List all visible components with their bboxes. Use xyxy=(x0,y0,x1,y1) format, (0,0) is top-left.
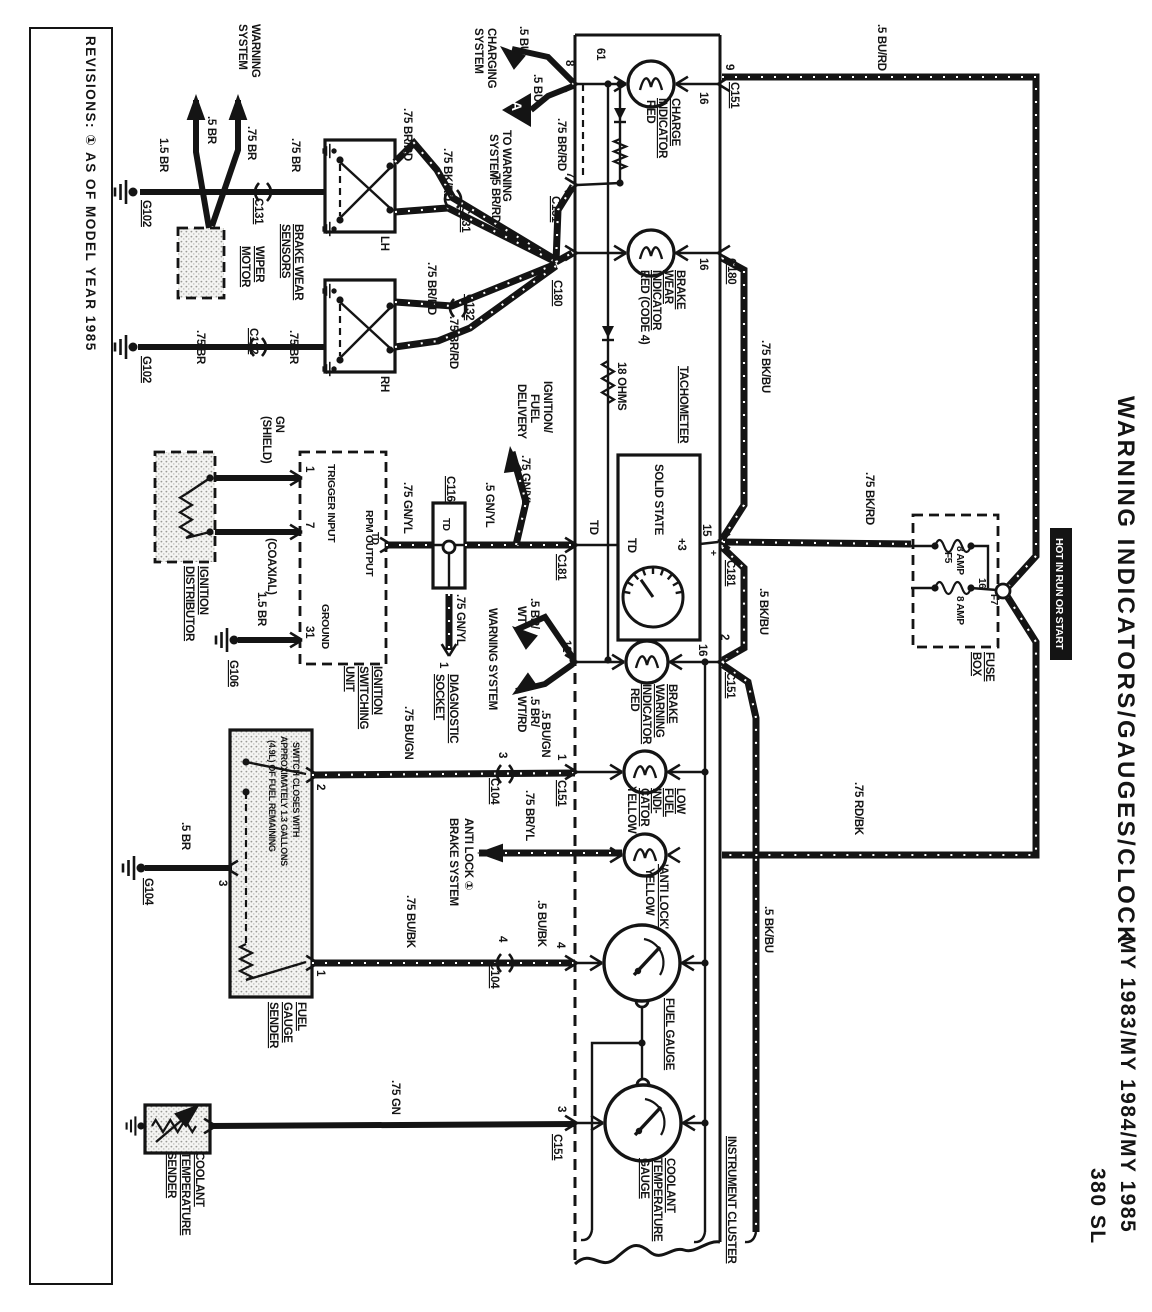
diagram-label: .5 BU/RD xyxy=(875,24,887,71)
diagram-label: 8 AMP xyxy=(954,546,965,575)
diagram-label: 1 xyxy=(303,466,315,473)
wire xyxy=(340,168,390,218)
junction-dot xyxy=(386,206,393,213)
diagram-label: FUSE xyxy=(983,652,995,682)
junction-dot xyxy=(206,474,213,481)
gauge-pivot xyxy=(635,968,641,974)
diagram-label: SWITCH CLOSES WITH xyxy=(291,742,301,837)
diagram-label: 1.5 BR xyxy=(157,138,169,173)
diagram-label: TRIGGER INPUT xyxy=(325,464,337,543)
junction-dot xyxy=(336,296,343,303)
diagram-label: 16 xyxy=(697,258,709,270)
diagram-label: C151 xyxy=(728,82,740,109)
diagram-label: 61 xyxy=(594,48,606,61)
junction-dot xyxy=(206,528,213,535)
diagram-label: RH xyxy=(378,376,390,392)
coolant-temperature-gauge-dial xyxy=(605,1085,681,1161)
diagram-label: 12 xyxy=(560,640,572,652)
diagram-label: C132 xyxy=(463,294,475,320)
junction-dot xyxy=(242,788,249,795)
diagram-label: COOLANT xyxy=(193,1152,205,1207)
fuel-gauge-dial xyxy=(604,925,680,1001)
diagram-label: + xyxy=(707,550,718,556)
diagram-label: .75 BR/RD xyxy=(425,262,437,315)
diagram-label: .75 BR/YL xyxy=(523,790,535,841)
diagram-label: F5 xyxy=(942,552,953,564)
diagram-label: .5 BU/GN xyxy=(539,710,551,757)
flow-arrow xyxy=(512,626,538,650)
diagram-label: TD xyxy=(369,532,380,545)
coolant-temperature-sender-box xyxy=(145,1105,210,1153)
diagram-label: C132 xyxy=(247,328,259,354)
diagram-label: .75 BR xyxy=(287,330,299,365)
diagram-label: 1 xyxy=(555,754,567,761)
diagram-label: .75 GN/YL xyxy=(401,482,413,534)
wire xyxy=(340,162,390,208)
diagram-label: GN xyxy=(273,416,285,433)
torn-wire-hook xyxy=(694,1232,705,1242)
diagram-label: LH xyxy=(378,236,390,251)
diagram-label: G102 xyxy=(140,356,152,383)
diagram-label: 31 xyxy=(303,626,315,639)
diagram-label: C151 xyxy=(551,1134,563,1161)
diagram-label: G104 xyxy=(142,878,154,906)
junction-dot xyxy=(701,959,708,966)
diagram-label: 1 xyxy=(314,970,326,977)
diagram-label: UNIT xyxy=(343,666,355,692)
fuel-gauge-dial xyxy=(604,925,680,1001)
diagram-label: YELLOW xyxy=(643,868,655,916)
diagram-label: G106 xyxy=(227,660,239,687)
labels-layer: REVISIONS: ① AS OF MODEL YEAR 1985WARNIN… xyxy=(83,24,1139,1264)
diagram-label: GROUND xyxy=(319,604,331,650)
diagram-label: C151 xyxy=(555,780,567,807)
diagram-label: ANTI LOCK ① xyxy=(462,818,474,890)
diagram-label: WARNING SYSTEM xyxy=(486,608,498,710)
fuse-icon xyxy=(935,582,971,594)
diagram-label: TD xyxy=(587,520,599,535)
revisions-panel xyxy=(30,28,112,1284)
diagram-label: (COAXIAL) xyxy=(265,538,277,595)
diagram-label: MOTOR xyxy=(239,246,251,288)
diagram-label: RED xyxy=(644,100,656,123)
ground-icon xyxy=(331,148,336,153)
diagram-label: WARNING xyxy=(653,684,665,738)
diagram-label: .75 GN xyxy=(389,1080,401,1115)
tach-tick xyxy=(624,592,630,593)
diagram-label: IGNITION xyxy=(371,666,383,715)
diagram-label: 1 xyxy=(437,662,449,669)
terminal-circle xyxy=(443,541,455,553)
diagram-label: YELLOW xyxy=(625,786,637,834)
diagram-label: .75 BR/RD xyxy=(555,118,567,171)
diagram-label: .5 GN/YL xyxy=(483,482,495,528)
wire xyxy=(722,596,1036,855)
junction-dot xyxy=(701,1119,708,1126)
diagram-label: .5 BR xyxy=(179,822,191,851)
wire xyxy=(722,258,744,538)
diagram-label: FUEL GAUGE xyxy=(663,998,675,1071)
wires-layer xyxy=(138,35,1036,1264)
diagram-label: A xyxy=(509,101,525,111)
ground-icon xyxy=(331,366,336,371)
diagram-label: C180 xyxy=(725,258,737,284)
diagram-label: SYSTEM xyxy=(487,134,499,180)
diagram-label: INSTRUMENT CLUSTER xyxy=(725,1136,737,1264)
diagram-label: SENDER xyxy=(267,1002,279,1049)
diagram-label: .5 BU xyxy=(531,74,543,102)
diagram-label: COOLANT xyxy=(664,1158,676,1213)
diagram-label: SOCKET xyxy=(433,674,445,720)
diagram-label: 3 xyxy=(216,880,228,886)
diagram-label: RED xyxy=(628,688,640,711)
diagram-label: 16 xyxy=(976,578,987,589)
diagram-label: .5 BR/ xyxy=(528,696,540,728)
diagram-label: 2 xyxy=(314,784,326,790)
diagram-label: SYSTEM xyxy=(472,28,484,74)
diagram-label: IGNITION xyxy=(197,566,209,615)
wire-hatch xyxy=(395,208,556,262)
diagram-label: WIPER xyxy=(253,246,265,283)
wiper-motor-box xyxy=(178,228,224,298)
diagram-label: WARNING INDICATORS/GAUGES/CLOCK xyxy=(1112,396,1139,946)
torn-wire-hook xyxy=(581,1230,592,1240)
diagram-label: INDICATOR xyxy=(650,270,662,331)
pin-arrow xyxy=(668,848,680,855)
diagram-label: 7 xyxy=(564,172,576,178)
wire xyxy=(340,302,390,348)
diagram-label: 'ANTI LOCK' xyxy=(657,864,669,929)
wire xyxy=(395,143,556,260)
diagram-label: .75 RD/BK xyxy=(852,782,864,836)
diagram-label: WEAR xyxy=(662,270,674,305)
diagram-label: .75 GN/YL xyxy=(519,455,531,507)
diagram-label: REVISIONS: ① AS OF MODEL YEAR 1985 xyxy=(83,36,98,352)
diagram-label: IGNITION/ xyxy=(541,381,553,434)
flow-arrow xyxy=(477,844,503,863)
diagram-label: .5 BU/BK xyxy=(535,900,547,948)
junction-dot xyxy=(336,216,343,223)
diagram-label: (SHIELD) xyxy=(260,416,272,464)
diagram-label: TEMPERATURE xyxy=(179,1152,191,1236)
flow-arrow xyxy=(187,94,206,120)
diagram-label: .5 BR/ xyxy=(528,598,540,630)
diagram-label: C151 xyxy=(549,196,561,223)
tachometer-dial xyxy=(623,567,683,627)
diagram-label: BOX xyxy=(970,652,982,677)
diagram-label: 9 xyxy=(723,64,735,70)
junction-dot xyxy=(701,658,708,665)
flow-arrow xyxy=(229,94,248,120)
ignition-distributor-box xyxy=(155,452,215,562)
diagram-label: .5 BK/BU xyxy=(757,588,769,635)
pin-arrow xyxy=(668,855,680,862)
diagram-label: 8 xyxy=(563,60,575,67)
diagram-label: CHARGE xyxy=(669,98,681,147)
junction-dot xyxy=(386,162,393,169)
diagram-label: 4 xyxy=(496,936,508,943)
diagram-label: C181 xyxy=(555,554,567,581)
wire xyxy=(395,208,556,262)
resistor-icon xyxy=(614,139,626,169)
diagram-label: BRAKE xyxy=(666,684,678,724)
diagram-label: .75 BK/RD xyxy=(863,472,875,525)
diagram-label: SENSORS xyxy=(279,224,291,279)
diagram-label: GAUGE xyxy=(638,1158,650,1199)
diagram-label: 3 xyxy=(496,752,508,758)
diagram-label: .5 BR xyxy=(205,116,217,145)
diagram-label: .75 BR xyxy=(194,330,206,365)
ground-icon xyxy=(137,864,146,873)
torn-wire-hook xyxy=(745,1232,756,1242)
wire xyxy=(577,183,620,185)
diagram-label: DIAGNOSTIC xyxy=(447,674,459,743)
diagram-label: RED (CODE 4) xyxy=(638,270,650,345)
diagram-label: 4 xyxy=(554,942,566,949)
junction-dot xyxy=(604,80,611,87)
diagram-label: 3 xyxy=(555,1106,567,1112)
diagram-label: WT xyxy=(515,606,527,624)
diagram-label: CATOR xyxy=(638,788,650,827)
diagram-label: G102 xyxy=(140,200,152,227)
junction-dot xyxy=(616,179,623,186)
diagram-label: SWITCHING xyxy=(357,666,369,729)
diagram-label: WT/RD xyxy=(515,696,527,732)
diagram-label: CHARGING xyxy=(485,28,497,89)
diagram-label: FUEL xyxy=(528,394,540,423)
rh-brake-wear-sensor-box xyxy=(325,280,395,372)
ground-icon xyxy=(137,1122,144,1129)
diagram-label: .75 BR xyxy=(289,138,301,173)
diagram-label: C131 xyxy=(459,206,471,233)
diagram-label: DELIVERY xyxy=(515,384,527,439)
wire xyxy=(700,542,718,544)
diagram-label: BRAKE WEAR xyxy=(292,224,304,301)
diagram-label: WARNING xyxy=(249,24,261,78)
diagram-label: BRAKE xyxy=(674,270,686,310)
diagram-label: C116 xyxy=(444,476,456,502)
diagram-label: C104 xyxy=(488,778,500,805)
diagram-label: APPROXIMATELY 1.3 GALLONS xyxy=(279,736,289,866)
wire-hatch xyxy=(722,596,1036,855)
junction-dot xyxy=(242,758,249,765)
diagram-label: GAUGE xyxy=(281,1002,293,1043)
diagram-label: .75 BR/RD xyxy=(447,316,459,369)
coolant-temperature-gauge-dial xyxy=(605,1085,681,1161)
diagram-label: +3 xyxy=(675,538,687,551)
diagram-label: BRAKE SYSTEM xyxy=(447,818,459,906)
diagram-label: 8 AMP xyxy=(954,596,965,625)
junction-dot xyxy=(336,156,343,163)
diagram-label: INDICATOR xyxy=(656,98,668,159)
ground-icon xyxy=(129,343,138,352)
cluster-torn-edge xyxy=(575,1242,720,1264)
diagram-label: .5 BK/BU xyxy=(762,906,774,953)
diagram-label: 16 xyxy=(697,92,709,104)
wire xyxy=(722,77,1036,588)
wire-hatch xyxy=(722,77,1036,588)
diode-icon xyxy=(602,326,614,338)
diagram-label: FUEL xyxy=(295,1002,307,1031)
diagram-label: C131 xyxy=(252,198,264,225)
gauge-pivot xyxy=(636,1128,642,1134)
ground-icon xyxy=(331,288,336,293)
lh-brake-wear-sensor-box xyxy=(325,140,395,232)
junction-dot xyxy=(701,768,708,775)
diagram-label: TACHOMETER xyxy=(677,366,689,444)
diagram-label: 7 xyxy=(303,522,315,528)
diagram-label: .75 BK/BU xyxy=(759,340,771,393)
wire xyxy=(210,1124,575,1126)
junction-dot xyxy=(386,346,393,353)
diode-icon xyxy=(614,108,626,120)
diagram-label: TD xyxy=(440,518,451,531)
wire xyxy=(340,308,390,358)
ground-icon xyxy=(230,636,239,645)
diagram-label: INDICATOR xyxy=(640,684,652,745)
diagram-label: MY 1983/MY 1984/MY 1985 xyxy=(1116,936,1139,1233)
diagram-label: SYSTEM xyxy=(236,24,248,70)
diagram-label: 380 SL xyxy=(1086,1168,1109,1245)
ground-icon xyxy=(129,188,138,197)
diagram-label: HOT IN RUN OR START xyxy=(1053,538,1065,650)
diagram-label: TO WARNING xyxy=(500,130,512,202)
brake-warning-indicator-bulb xyxy=(626,641,668,683)
wire xyxy=(723,542,911,544)
diagram-label: INDI- xyxy=(650,788,662,814)
wiring-diagram-svg: REVISIONS: ① AS OF MODEL YEAR 1985WARNIN… xyxy=(0,0,1152,1312)
diagram-label: 2 xyxy=(718,634,730,640)
diagram-label: DISTRIBUTOR xyxy=(183,566,195,642)
diagram-label: 15 xyxy=(700,524,712,537)
diagram-label: SOLID STATE xyxy=(652,464,664,536)
diagram-label: 16 xyxy=(696,644,708,656)
diagram-label: .75 BR/RD xyxy=(401,108,413,161)
diagram-label: 18 OHMS xyxy=(615,362,627,411)
diagram-label: F7 xyxy=(988,594,999,606)
diagram-label: .75 BK/RD xyxy=(441,148,453,201)
diagram-label: C180 xyxy=(551,280,563,306)
diagram-label: TD xyxy=(625,538,637,553)
junction-dot xyxy=(604,656,611,663)
diagram-label: C151 xyxy=(724,672,736,699)
diagram-label: C104 xyxy=(488,962,500,989)
diagram-label: TEMPERATURE xyxy=(651,1158,663,1242)
ground-icon xyxy=(331,226,336,231)
resistor-icon xyxy=(602,361,614,403)
wiring-diagram-sheet: REVISIONS: ① AS OF MODEL YEAR 1985WARNIN… xyxy=(0,0,1152,1312)
diagram-label: C181 xyxy=(724,560,736,587)
diagram-label: LOW xyxy=(674,788,686,814)
diagram-label: .75 GN/YL xyxy=(454,594,466,646)
junction-dot xyxy=(336,356,343,363)
tach-tick xyxy=(676,592,682,593)
junction-dot xyxy=(569,656,576,663)
junction-dot xyxy=(386,302,393,309)
diagram-label: 1.5 BR xyxy=(255,592,267,627)
diagram-label: SENDER xyxy=(165,1152,177,1199)
junction-dot xyxy=(638,1039,645,1046)
diagram-label: .75 BU/GN xyxy=(402,706,414,760)
diagram-label: .5 BU xyxy=(517,26,529,54)
diagram-label: FUEL xyxy=(662,788,674,817)
diagram-label: .75 BR xyxy=(245,126,257,161)
diagram-label: (4.9L) OF FUEL REMAINING xyxy=(267,740,277,852)
diagram-label: .75 BU/BK xyxy=(404,895,416,949)
